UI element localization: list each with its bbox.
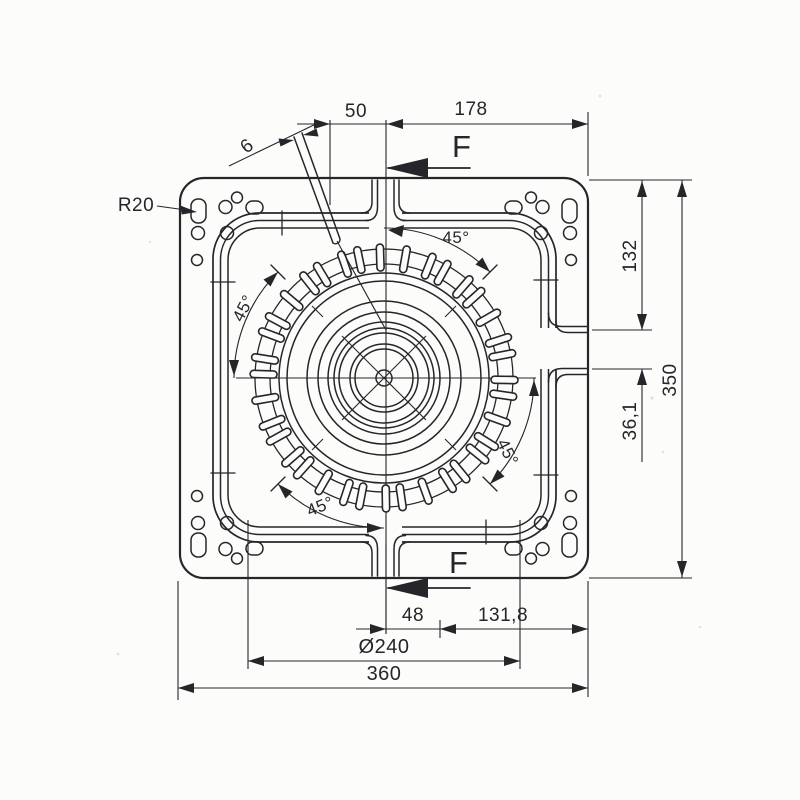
section-f-top-label: F	[452, 129, 472, 164]
angle-top-right-label: 45°	[442, 228, 469, 247]
corner-radius-leader: R20	[118, 195, 197, 216]
dim-360-label: 360	[367, 663, 402, 685]
dim-132-label: 132	[620, 239, 641, 272]
angle-bottom-left-label: 45°	[304, 493, 336, 521]
dim-36-1-label: 36,1	[620, 402, 641, 441]
dim-178-label: 178	[454, 99, 487, 120]
slot-width-label: 6	[236, 135, 258, 158]
mount-holes-bottom-left	[191, 491, 263, 565]
dim-48-label: 48	[402, 605, 424, 626]
technical-drawing-canvas: 6 45° 45° 45° 45° 50 178	[0, 0, 800, 800]
dim-131-8-label: 131,8	[478, 605, 528, 626]
dimension-top: 50 178	[297, 99, 588, 205]
dim-r20-label: R20	[118, 195, 154, 216]
swivel-plate-drawing: 6 45° 45° 45° 45° 50 178	[0, 0, 800, 800]
dim-240-label: Ø240	[359, 636, 410, 658]
section-marker-top: F	[386, 129, 472, 178]
section-f-bottom-label: F	[449, 545, 469, 580]
dim-350-label: 350	[660, 363, 681, 396]
dimension-right: 132 36,1 350	[589, 180, 692, 578]
dim-50-label: 50	[345, 101, 367, 122]
angle-top-left-label: 45°	[229, 292, 258, 325]
